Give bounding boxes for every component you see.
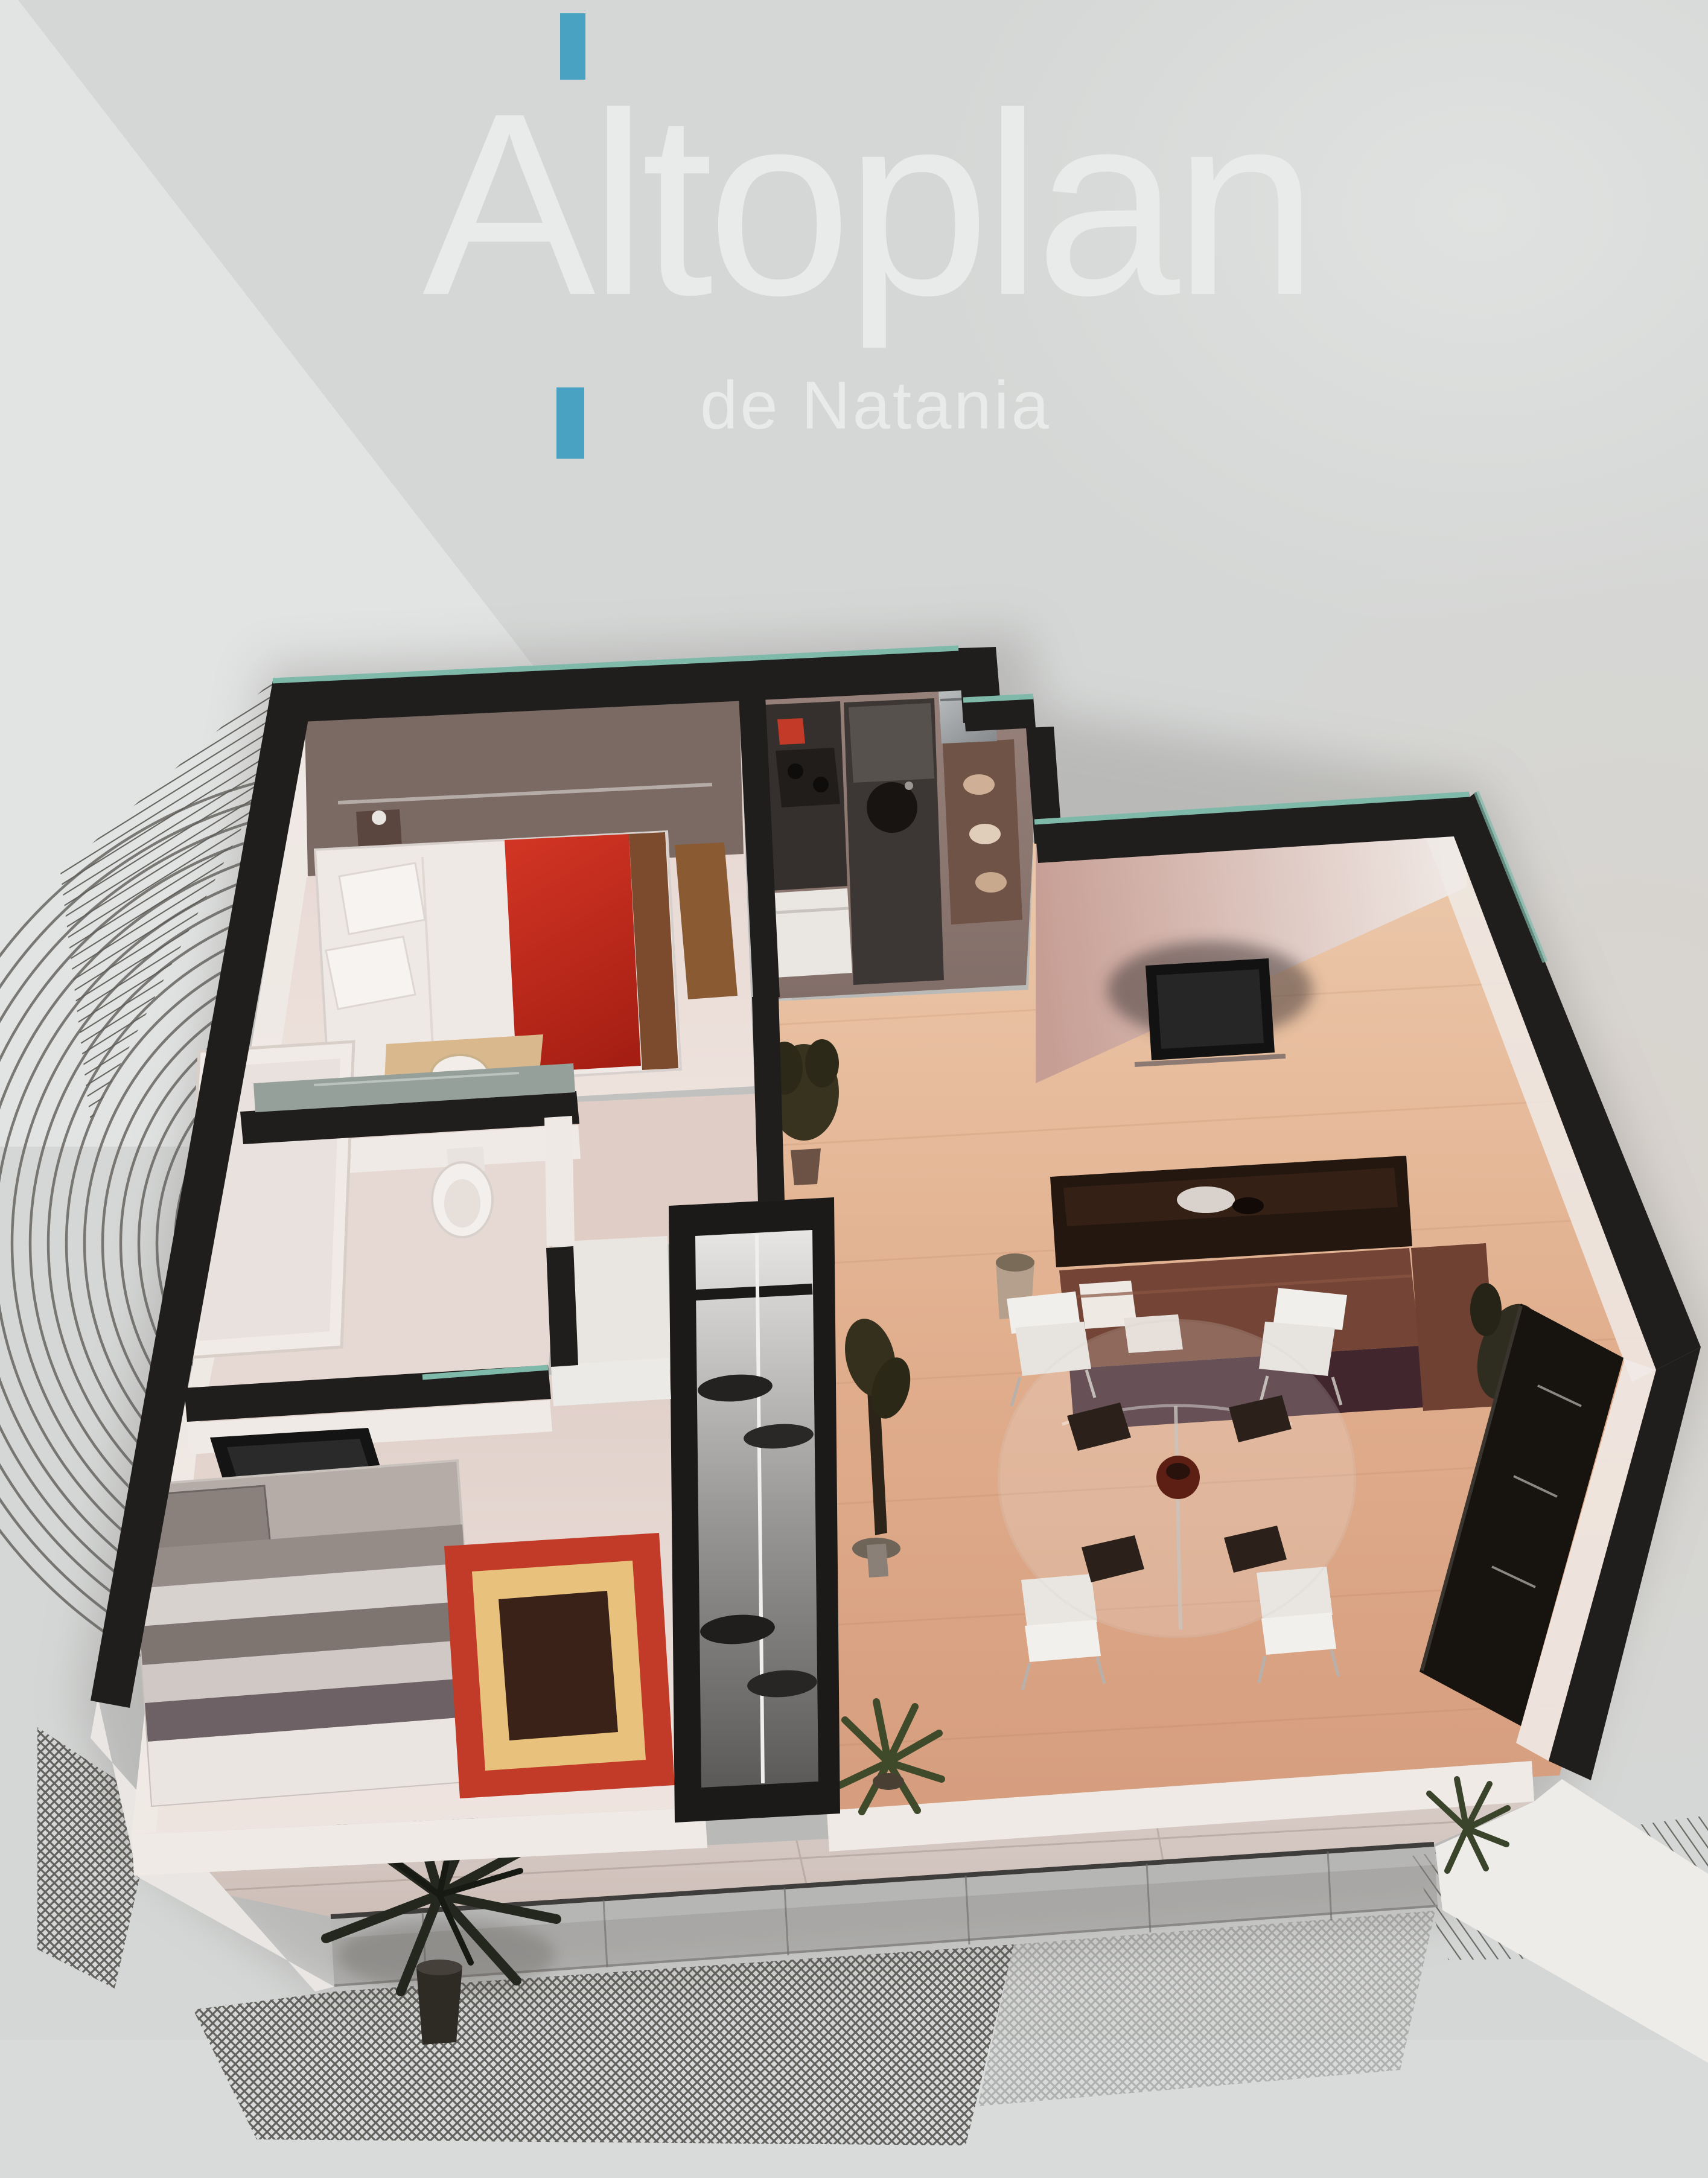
red-framed-rug xyxy=(444,1533,675,1798)
open-closet xyxy=(669,1197,840,1823)
bathroom-door-gap xyxy=(544,1116,575,1246)
kitchen-left-counter xyxy=(763,701,847,891)
kitchen-bar-counter xyxy=(943,739,1022,925)
palm-pot xyxy=(416,1966,462,2045)
nightstand-lamp xyxy=(356,809,402,849)
plant-pot xyxy=(791,1148,821,1185)
bathroom-east-wall xyxy=(546,1246,578,1367)
red-pot xyxy=(777,718,805,745)
kitchen-island xyxy=(844,698,944,985)
floor-plan-render xyxy=(0,0,1708,2178)
white-appliance xyxy=(770,888,852,978)
single-bed-striped xyxy=(130,1460,480,1806)
stove xyxy=(776,748,840,807)
brochure-page: Altoplan de Natania xyxy=(0,0,1708,2178)
round-glass-table xyxy=(999,1320,1355,1637)
table-tray xyxy=(1177,1186,1235,1213)
